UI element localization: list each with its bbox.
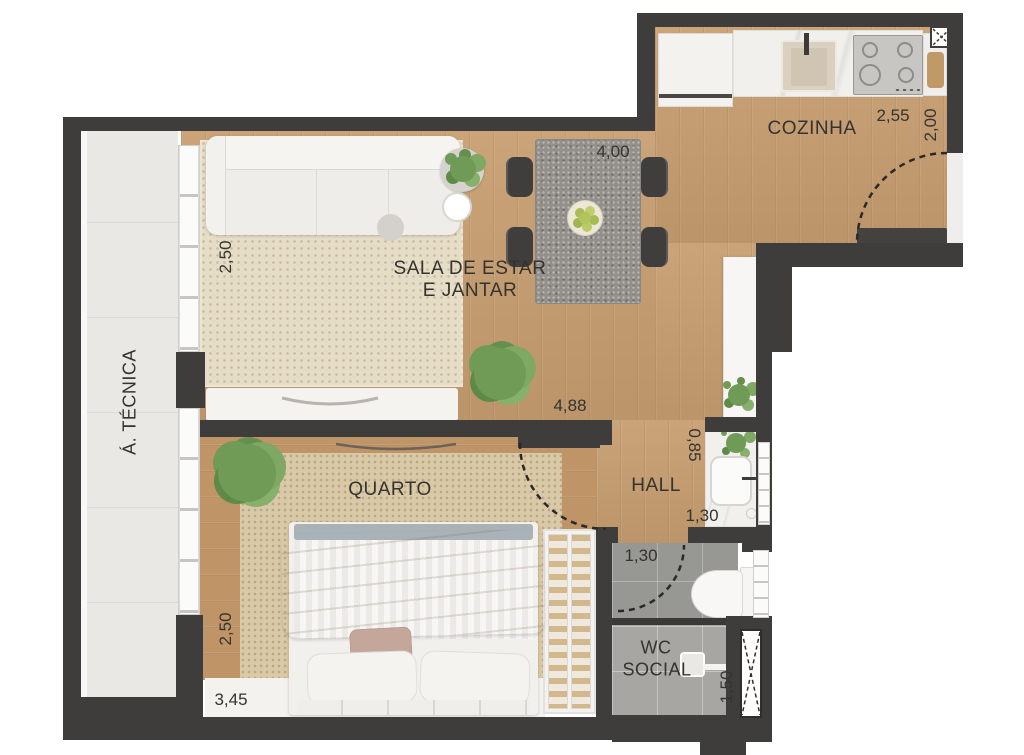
basin-faucet <box>742 477 756 480</box>
room-label-wc-line2: SOCIAL <box>622 660 691 681</box>
entry-threshold <box>947 153 963 243</box>
bed-pillow <box>419 650 531 706</box>
room-label-hall: HALL <box>631 475 681 497</box>
wc-divider-wall <box>612 618 738 625</box>
room-label-wc-line1: WC <box>641 638 672 659</box>
wall-top-main <box>63 117 655 131</box>
sink-faucet <box>804 33 809 55</box>
bed-base-slats <box>297 700 529 715</box>
wall-basin-niche-top <box>705 417 772 432</box>
bedroom-door-leaf <box>518 437 600 448</box>
wall-bedroom-right-jamb <box>596 437 612 445</box>
wall-right-upper <box>756 243 792 352</box>
burner <box>898 67 914 83</box>
corridor-plant <box>728 384 750 406</box>
dim-wc-depth: 1,50 <box>717 670 737 703</box>
kitchen-bench <box>857 228 947 243</box>
stove-knobs <box>894 88 920 92</box>
refrigerator-door-split <box>659 94 732 98</box>
wall-wc-bottom <box>612 715 772 742</box>
shaft-vent <box>740 629 762 718</box>
dining-chair <box>641 227 668 267</box>
closet-shelf-column <box>548 534 568 709</box>
wall-left-lower-inner <box>176 615 203 717</box>
bed-pillow <box>306 650 418 706</box>
sofa-seat-divider <box>316 170 317 235</box>
bedroom-plant <box>218 444 276 502</box>
wall-kitchen-right <box>947 13 963 153</box>
dim-kitchen-depth: 2,00 <box>921 108 941 141</box>
side-table-plant <box>450 156 476 182</box>
burner <box>862 42 878 58</box>
sideboard <box>206 388 458 421</box>
cooktop-stove <box>853 35 923 95</box>
wall-living-bedroom <box>181 420 612 437</box>
closet-shelf-column <box>571 534 591 709</box>
dim-living-depth: 2,50 <box>216 240 236 273</box>
dim-bedroom-depth: 2,50 <box>216 612 236 645</box>
room-label-technical-area: Á. TÉCNICA <box>120 349 141 455</box>
cutting-board <box>927 52 944 88</box>
wall-kitchen-connector <box>637 13 655 121</box>
refrigerator <box>658 33 733 107</box>
wall-bedroom-bottom <box>181 717 612 740</box>
wall-bedroom-wc <box>596 527 612 717</box>
dim-basin-width: 1,30 <box>685 506 718 526</box>
sofa-armrest <box>206 136 226 235</box>
dim-wc-door: 1,30 <box>624 546 657 566</box>
dining-chair <box>641 157 668 197</box>
coffee-cup-table <box>442 192 472 222</box>
bedroom-window <box>178 408 200 615</box>
burner <box>859 64 881 86</box>
wall-window-separator <box>176 352 205 408</box>
closet <box>543 529 596 714</box>
wall-kitchen-bottom-right <box>790 243 963 267</box>
room-label-living-line2: E JANTAR <box>423 280 517 302</box>
wall-bottom-step <box>700 734 746 755</box>
dim-kitchen-width: 2,55 <box>876 106 909 126</box>
basin-plant <box>726 433 746 453</box>
room-label-bedroom: QUARTO <box>348 479 432 501</box>
burner <box>897 42 913 58</box>
apartment-floor-plan: COZINHA 2,55 2,00 4,00 SALA DE ESTAR E J… <box>0 0 1024 755</box>
basin-window <box>758 442 770 525</box>
dining-chair <box>506 157 533 197</box>
dim-living-width: 4,88 <box>553 396 586 416</box>
sink-basin <box>791 48 827 86</box>
technical-sill <box>81 128 87 698</box>
fruit-apples <box>579 212 591 224</box>
dim-dining-width: 4,00 <box>596 142 629 162</box>
sofa <box>206 136 460 235</box>
bed-blanket <box>281 529 545 638</box>
kitchen-sink <box>781 40 837 92</box>
fruit-bowl <box>567 200 603 236</box>
sofa-backrest <box>206 136 460 170</box>
dim-basin-depth: 0,85 <box>684 428 704 461</box>
wall-technical-bottom <box>63 697 181 740</box>
room-label-living-line1: SALA DE ESTAR <box>394 258 547 280</box>
room-label-kitchen: COZINHA <box>768 118 857 140</box>
toilet-bowl <box>691 570 743 618</box>
wc-window <box>753 550 769 618</box>
living-plant <box>474 348 526 400</box>
ottoman-pouf <box>377 214 404 241</box>
washbasin <box>710 456 752 506</box>
wall-kitchen-top <box>637 13 963 27</box>
wall-wc-door-jamb <box>612 527 618 543</box>
wall-left-outer <box>63 117 81 740</box>
living-window <box>178 145 200 352</box>
dim-bedroom-width: 3,45 <box>214 690 247 710</box>
